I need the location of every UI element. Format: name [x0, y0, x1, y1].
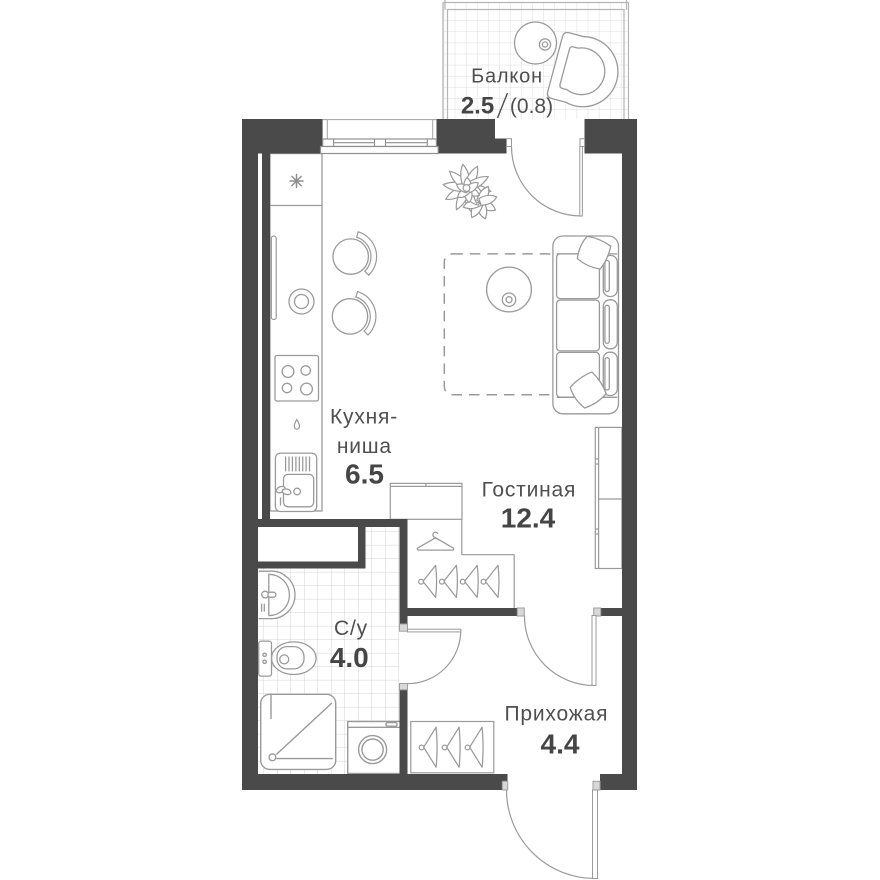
- svg-text:С/у: С/у: [334, 617, 368, 640]
- svg-text:Балкон: Балкон: [471, 66, 543, 88]
- svg-text:2.5: 2.5: [461, 93, 494, 120]
- svg-text:4.0: 4.0: [330, 642, 369, 673]
- svg-text:Кухня-: Кухня-: [330, 406, 398, 429]
- svg-text:Прихожая: Прихожая: [505, 703, 609, 726]
- svg-text:12.4: 12.4: [501, 503, 556, 534]
- svg-text:(0.8): (0.8): [510, 95, 553, 118]
- svg-text:4.4: 4.4: [541, 729, 580, 760]
- svg-text:Гостиная: Гостиная: [482, 479, 577, 502]
- svg-text:6.5: 6.5: [345, 459, 384, 490]
- svg-text:ниша: ниша: [337, 435, 392, 458]
